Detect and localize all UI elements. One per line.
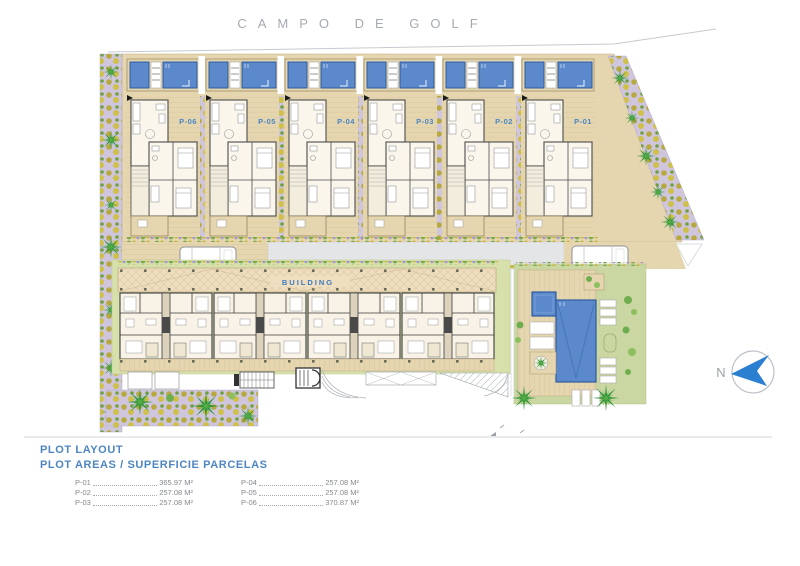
dotted-leader bbox=[93, 505, 157, 506]
palm-icon bbox=[611, 69, 629, 87]
townhouse-row: P-06 P-05 P-04 P-03 P-02 P-01 bbox=[122, 54, 682, 242]
left-planting-strip bbox=[100, 54, 123, 432]
jacuzzi-pool bbox=[532, 292, 556, 316]
dotted-leader bbox=[259, 505, 323, 506]
north-label: N bbox=[716, 365, 725, 380]
legend: PLOT LAYOUT PLOT AREAS / SUPERFICIE PARC… bbox=[40, 443, 370, 508]
palm-icon bbox=[593, 385, 620, 412]
plot-area-row: P-06 370.87 M² bbox=[241, 498, 359, 508]
palm-icon bbox=[192, 392, 221, 421]
plot-area-row: P-04 257.08 M² bbox=[241, 478, 359, 488]
palm-icon bbox=[511, 385, 536, 410]
legend-column-left: P-01 365.97 M² P-02 257.08 M² P-03 257.0… bbox=[75, 478, 193, 508]
dotted-leader bbox=[259, 485, 323, 486]
townhouse-unit bbox=[442, 58, 516, 242]
plot-area-value: 257.08 M² bbox=[325, 488, 359, 498]
legend-heading-2: PLOT AREAS / SUPERFICIE PARCELAS bbox=[40, 458, 370, 473]
palm-icon bbox=[624, 110, 639, 125]
plot-area-label: P-04 bbox=[241, 478, 257, 488]
plot-area-row: P-02 257.08 M² bbox=[75, 488, 193, 498]
dotted-leader bbox=[93, 495, 157, 496]
plot-area-value: 370.87 M² bbox=[325, 498, 359, 508]
dotted-leader bbox=[259, 495, 323, 496]
palm-icon bbox=[103, 64, 119, 80]
plot-area-value: 257.08 M² bbox=[325, 478, 359, 488]
page: CAMPO DE GOLF bbox=[0, 0, 800, 566]
north-arrow-icon: N bbox=[716, 351, 774, 393]
legend-heading-1: PLOT LAYOUT bbox=[40, 443, 370, 458]
palm-icon bbox=[104, 198, 118, 212]
plot-area-label: P-06 bbox=[241, 498, 257, 508]
plot-area-row: P-05 257.08 M² bbox=[241, 488, 359, 498]
plot-label: P-04 bbox=[337, 117, 355, 126]
townhouse-unit bbox=[205, 58, 279, 242]
palm-icon bbox=[650, 184, 666, 200]
plot-area-row: P-03 257.08 M² bbox=[75, 498, 193, 508]
legend-columns: P-01 365.97 M² P-02 257.08 M² P-03 257.0… bbox=[75, 478, 370, 508]
plot-area-label: P-01 bbox=[75, 478, 91, 488]
townhouse-unit bbox=[521, 58, 595, 242]
palm-icon bbox=[534, 356, 548, 370]
plot-label: P-02 bbox=[495, 117, 513, 126]
apartment-module bbox=[120, 293, 212, 359]
palm-icon bbox=[238, 406, 258, 426]
building-block: BUILDING bbox=[106, 260, 510, 426]
garage-entry bbox=[296, 368, 320, 388]
palm-icon bbox=[636, 146, 656, 166]
legend-column-right: P-04 257.08 M² P-05 257.08 M² P-06 370.8… bbox=[241, 478, 359, 508]
planting-bed bbox=[106, 389, 258, 427]
apartment-module bbox=[402, 293, 494, 359]
plot-area-value: 365.97 M² bbox=[159, 478, 193, 488]
building-label: BUILDING bbox=[282, 278, 334, 287]
bottom-boundary bbox=[24, 425, 772, 437]
plot-label: P-03 bbox=[416, 117, 434, 126]
plot-area-value: 257.08 M² bbox=[159, 498, 193, 508]
plot-label: P-06 bbox=[179, 117, 197, 126]
plot-area-row: P-01 365.97 M² bbox=[75, 478, 193, 488]
palm-icon bbox=[127, 389, 154, 416]
swimming-pool bbox=[556, 300, 596, 382]
dotted-leader bbox=[93, 485, 157, 486]
palm-icon bbox=[100, 236, 123, 259]
palm-icon bbox=[101, 130, 121, 150]
plot-area-label: P-03 bbox=[75, 498, 91, 508]
plot-area-value: 257.08 M² bbox=[159, 488, 193, 498]
plot-area-label: P-02 bbox=[75, 488, 91, 498]
stairs bbox=[234, 372, 274, 388]
townhouse-unit bbox=[126, 58, 200, 242]
site-boundary bbox=[108, 29, 716, 52]
apartment-module bbox=[214, 293, 306, 359]
plot-area-label: P-05 bbox=[241, 488, 257, 498]
plot-label: P-05 bbox=[258, 117, 276, 126]
palm-icon bbox=[661, 213, 680, 232]
apartment-module bbox=[308, 293, 400, 359]
plot-label: P-01 bbox=[574, 117, 592, 126]
pool-area bbox=[511, 262, 646, 412]
townhouse-unit bbox=[284, 58, 358, 242]
townhouse-unit bbox=[363, 58, 437, 242]
